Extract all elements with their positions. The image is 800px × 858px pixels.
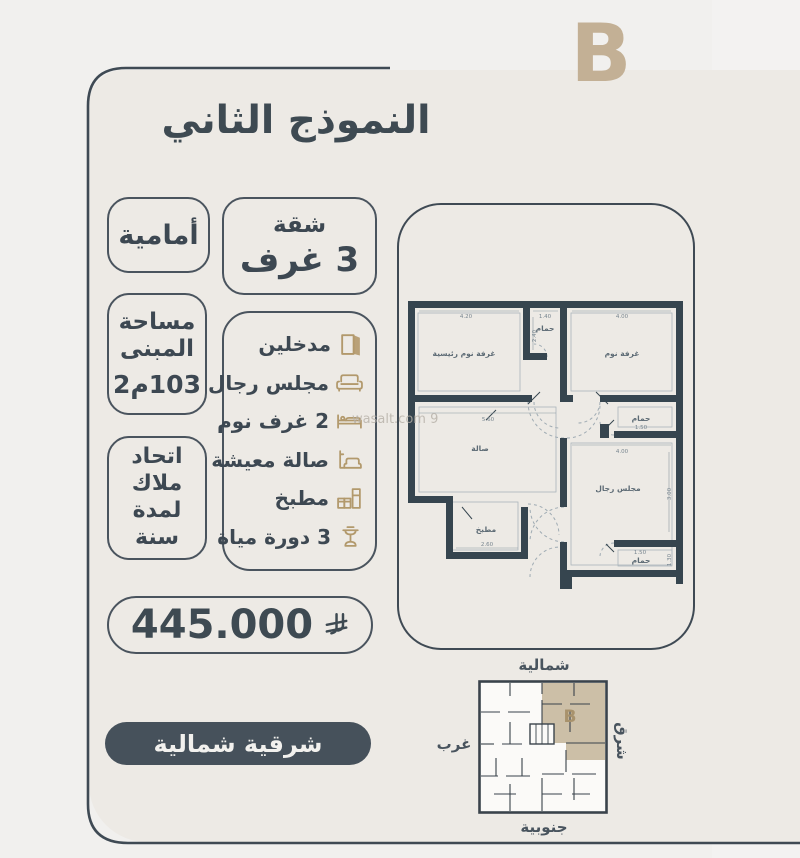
orientation-label: شرقية شمالية <box>153 730 322 758</box>
room-labels: غرفة نوم رئيسية حمام غرفة نوم صالة حمام … <box>433 324 651 565</box>
direction-east: شرق <box>613 721 631 761</box>
dim-bedroom-top: 4.00 <box>616 314 629 320</box>
hoa-word-3: لمدة <box>133 498 182 525</box>
direction-north: شمالية <box>480 656 608 674</box>
couch-icon <box>336 447 363 472</box>
dim-bath-side: 2.40 <box>532 329 538 342</box>
page-title: النموذج الثاني <box>120 98 472 143</box>
feature-row-kitchen: مطبخ <box>224 479 375 518</box>
apartment-badge: شقة 3 غرف <box>222 197 377 295</box>
room-label-hall: صالة <box>471 444 488 453</box>
feature-label: مدخلين <box>258 332 331 356</box>
area-word-2: المبنى <box>120 336 194 362</box>
dim-hall-top: 5.60 <box>482 417 495 423</box>
feature-label: 2 غرف نوم <box>217 409 329 433</box>
direction-west: غرب <box>434 735 474 753</box>
feature-row-living: صالة معيشة <box>224 441 375 480</box>
room-label-master: غرفة نوم رئيسية <box>433 349 496 358</box>
dim-bath-right: 1.50 <box>635 425 648 431</box>
room-label-bedroom: غرفة نوم <box>605 349 640 358</box>
dim-majlis-side: 3.00 <box>667 487 673 500</box>
apartment-rooms: 3 غرف <box>240 240 359 280</box>
kitchen-icon <box>336 486 363 511</box>
saudi-riyal-icon <box>323 611 349 639</box>
dimension-lines <box>419 311 671 548</box>
room-label-majlis: مجلس رجال <box>595 484 641 493</box>
feature-label: 3 دورة مياة <box>217 525 331 549</box>
area-badge: مساحة المبنى 103م2 <box>107 293 207 415</box>
room-label-bath-bottom: حمام <box>632 556 651 565</box>
watermark: wasalt.com 9 <box>352 412 438 427</box>
hoa-badge: اتحاد ملاك لمدة سنة <box>107 436 207 560</box>
room-label-bath-right: حمام <box>632 414 651 423</box>
miniplan-stair-core <box>530 724 554 744</box>
dim-bath-bottom: 1.50 <box>634 550 647 556</box>
hoa-word-1: اتحاد <box>131 444 182 471</box>
price-badge: 445.000 <box>107 596 373 654</box>
floorplan-drawing: غرفة نوم رئيسية حمام غرفة نوم صالة حمام … <box>400 292 690 612</box>
dim-bath-top: 1.40 <box>539 314 552 320</box>
feature-label: صالة معيشة <box>211 448 329 472</box>
room-label-kitchen: مطبخ <box>476 525 497 534</box>
door-icon <box>338 332 363 357</box>
front-badge-label: أمامية <box>118 220 198 251</box>
room-label-bath-top: حمام <box>536 324 555 333</box>
sofa-icon <box>336 370 363 395</box>
feature-row-entrances: مدخلين <box>224 325 375 364</box>
hoa-word-4: سنة <box>135 525 179 552</box>
direction-south: جنوبية <box>480 818 608 836</box>
dim-majlis-top: 4.00 <box>616 449 629 455</box>
area-word-1: مساحة <box>119 309 196 335</box>
orientation-pill: شرقية شمالية <box>105 722 371 765</box>
feature-row-bathrooms: 3 دورة مياة <box>224 518 375 557</box>
feature-row-majlis: مجلس رجال <box>224 364 375 403</box>
model-letter: B <box>556 14 646 94</box>
basin-icon <box>338 524 363 549</box>
apartment-word: شقة <box>273 212 326 238</box>
price-value: 445.000 <box>131 602 313 648</box>
dim-kitchen: 2.60 <box>481 542 494 548</box>
feature-label: مطبخ <box>275 486 329 510</box>
front-badge: أمامية <box>107 197 210 273</box>
building-miniplan: B <box>478 680 608 814</box>
features-panel: مدخلين مجلس رجال 2 غرف نوم <box>222 311 377 571</box>
flyer-page: B النموذج الثاني أمامية شقة 3 غرف مساحة … <box>0 0 800 858</box>
dim-master-top: 4.20 <box>460 314 473 320</box>
hoa-word-2: ملاك <box>132 471 183 498</box>
area-value: 103م2 <box>113 370 201 399</box>
feature-label: مجلس رجال <box>208 371 329 395</box>
miniplan-unit-letter: B <box>564 707 577 727</box>
dim-bath-bottom-side: 1.30 <box>667 553 673 566</box>
